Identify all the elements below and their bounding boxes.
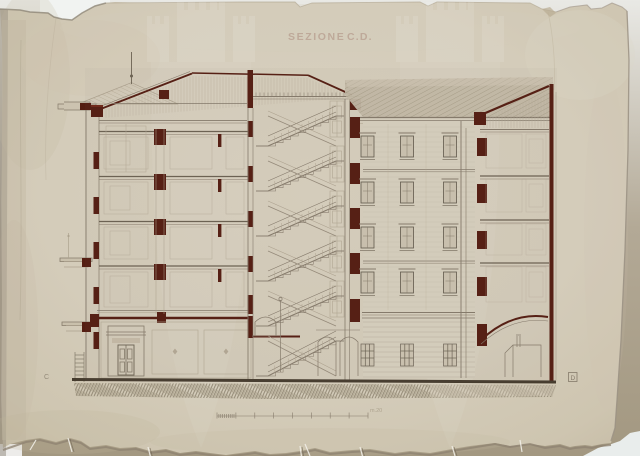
svg-text:C.D.: C.D. [347,31,373,43]
svg-text:D: D [571,375,576,382]
svg-text:C: C [44,374,49,381]
svg-text:SEZIONE: SEZIONE [288,31,345,43]
svg-text:m.20: m.20 [370,408,382,414]
